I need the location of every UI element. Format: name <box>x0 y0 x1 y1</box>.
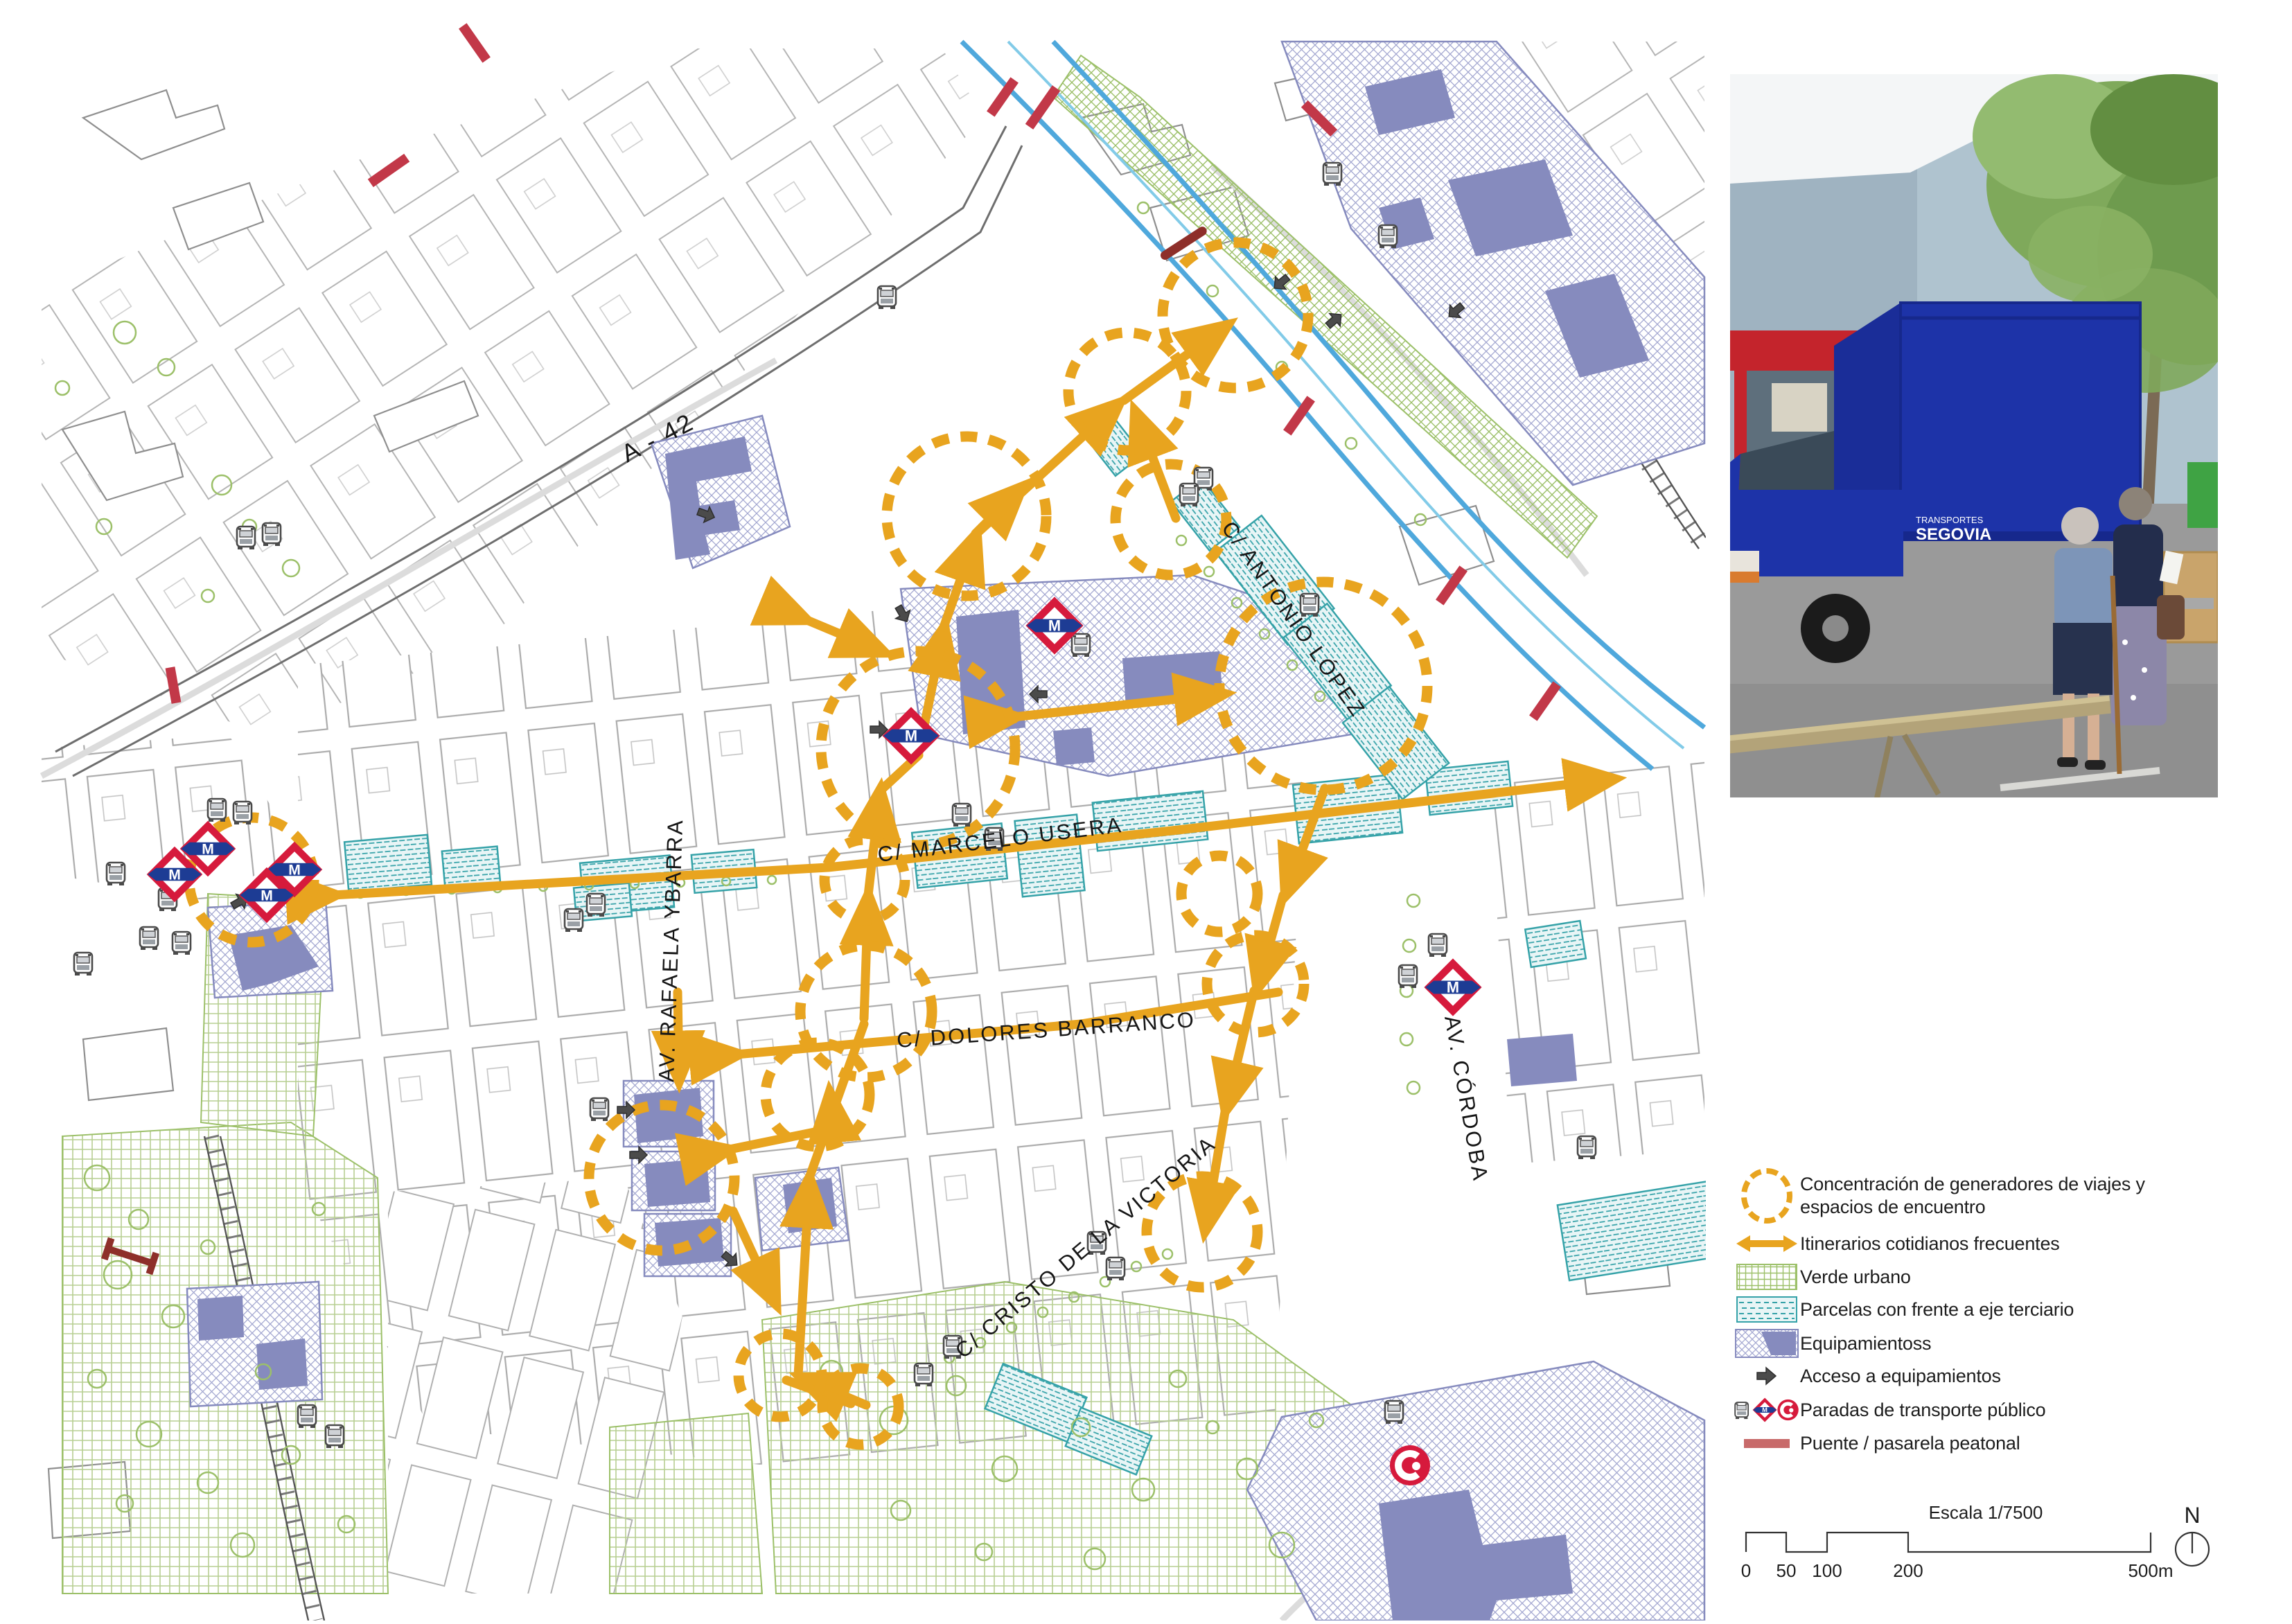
map-canvas: M <box>0 0 1706 1621</box>
truck-label-line2: SEGOVIA <box>1916 525 1991 544</box>
street-photo: TRANSPORTES SEGOVIA <box>1730 74 2218 797</box>
urban-plan-sheet: { "map": { "labels": { "a42": "A - 42", … <box>0 0 2292 1621</box>
access-arrow-icon <box>1753 1364 1781 1388</box>
svg-text:N: N <box>2184 1503 2200 1528</box>
legend-row-itineraries: Itinerarios cotidianos frecuentes <box>1734 1230 2239 1257</box>
truck-label-line1: TRANSPORTES <box>1916 515 1984 525</box>
dashed-circle-icon <box>1741 1168 1792 1224</box>
green-grid-swatch <box>1736 1264 1797 1290</box>
legend-label: Itinerarios cotidianos frecuentes <box>1800 1233 2060 1255</box>
cercanias-station <box>1390 1445 1430 1485</box>
legend-label: Concentración de generadores de viajes y… <box>1800 1173 2174 1219</box>
bridge-bar-icon <box>1744 1439 1790 1448</box>
scale-tick-labels: 0 50 100 200 500m <box>1741 1560 2174 1581</box>
north-arrow: N <box>2176 1503 2209 1566</box>
legend-row-acceso: Acceso a equipamientos <box>1734 1364 2239 1388</box>
legend-label: Acceso a equipamientos <box>1800 1365 2001 1388</box>
legend-row-equipamientos: Equipamientoss <box>1734 1329 2239 1358</box>
scale-title: Escala 1/7500 <box>1929 1502 2043 1523</box>
svg-text:0: 0 <box>1741 1560 1751 1581</box>
svg-text:50: 50 <box>1777 1560 1797 1581</box>
legend-row-concentration: Concentración de generadores de viajes y… <box>1734 1168 2239 1224</box>
scale-bar: Escala 1/7500 0 50 100 200 500m N <box>1729 1490 2256 1604</box>
legend-row-puente: Puente / pasarela peatonal <box>1734 1432 2239 1455</box>
urban-plan-map: M <box>0 0 1706 1621</box>
legend-row-paradas: Paradas de transporte público <box>1734 1394 2239 1426</box>
svg-text:200: 200 <box>1893 1560 1923 1581</box>
legend-label: Verde urbano <box>1800 1266 1911 1289</box>
teal-dash-swatch <box>1736 1296 1797 1323</box>
legend-label: Puente / pasarela peatonal <box>1800 1432 2020 1455</box>
scale-bar-graphic <box>1746 1533 2151 1552</box>
map-legend: Concentración de generadores de viajes y… <box>1734 1168 2239 1461</box>
legend-label: Paradas de transporte público <box>1800 1399 2045 1422</box>
svg-text:100: 100 <box>1812 1560 1842 1581</box>
legend-row-parcelas: Parcelas con frente a eje terciario <box>1734 1296 2239 1323</box>
legend-label: Parcelas con frente a eje terciario <box>1800 1298 2074 1321</box>
double-arrow-icon <box>1735 1230 1799 1257</box>
legend-row-verde: Verde urbano <box>1734 1264 2239 1290</box>
legend-label: Equipamientoss <box>1800 1332 1931 1355</box>
photo-green-car <box>2187 462 2218 528</box>
transport-stop-icons <box>1734 1394 1800 1426</box>
purple-hatch-swatch <box>1735 1329 1799 1358</box>
svg-text:500m: 500m <box>2128 1560 2173 1581</box>
